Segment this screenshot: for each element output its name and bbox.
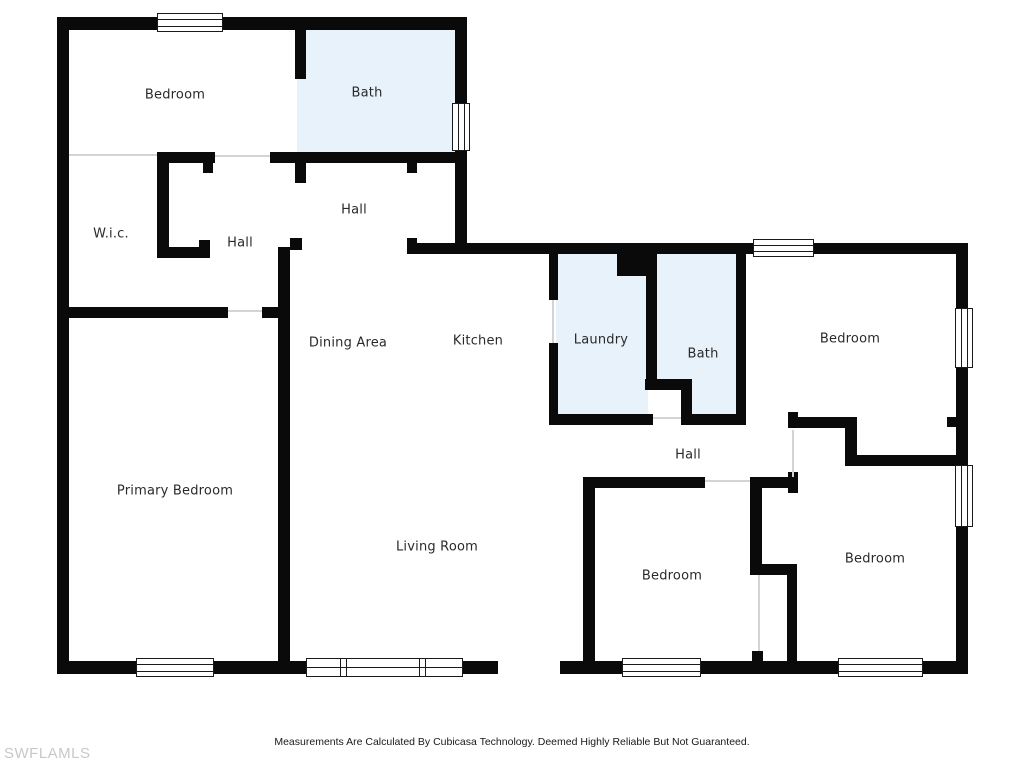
room-label-hall-left: Hall (227, 236, 253, 251)
window-frame-line (158, 26, 222, 27)
room-label-bedroom-top-left: Bedroom (145, 88, 205, 103)
window (753, 239, 814, 257)
wall-segment (845, 455, 957, 466)
room-label-living-room: Living Room (396, 540, 478, 555)
wall-segment (736, 243, 746, 425)
window-frame-line (839, 671, 922, 672)
wall-segment (157, 247, 210, 258)
wall-segment (752, 651, 763, 663)
wall-segment (199, 240, 210, 248)
window (955, 465, 973, 527)
room-label-laundry: Laundry (574, 333, 628, 348)
bath-right-door-recess (653, 390, 681, 417)
opening-line (69, 154, 157, 156)
window (452, 103, 470, 151)
wall-segment (407, 243, 968, 254)
duct-block (617, 243, 651, 276)
room-label-bedroom-bottom-middle: Bedroom (642, 569, 702, 584)
wall-segment (549, 343, 558, 423)
window-frame-line (839, 664, 922, 665)
room-label-kitchen: Kitchen (453, 334, 503, 349)
wall-segment (295, 152, 306, 183)
window-frame-line (137, 664, 213, 665)
window-frame-line (961, 309, 962, 367)
window-frame-line (961, 466, 962, 526)
window-frame-line (307, 667, 462, 668)
wall-segment (787, 564, 797, 673)
opening-line (653, 417, 681, 419)
window (838, 658, 923, 677)
wall-segment (57, 307, 228, 318)
room-label-bedroom-bottom-right: Bedroom (845, 552, 905, 567)
window-frame-line (967, 466, 968, 526)
wall-segment (57, 17, 69, 673)
window (136, 658, 214, 677)
opening-line (758, 575, 760, 651)
opening-line (215, 155, 270, 157)
wall-segment (57, 17, 467, 30)
opening-line (228, 310, 262, 312)
room-label-bedroom-right-top: Bedroom (820, 332, 880, 347)
window (157, 13, 223, 32)
window-frame-line (754, 251, 813, 252)
room-label-bath-top: Bath (351, 86, 382, 101)
window-frame-line (464, 104, 465, 150)
opening-line (552, 300, 554, 343)
window-frame-line (137, 671, 213, 672)
window-frame-line (419, 659, 420, 676)
floor-plan: Bedroom Bath W.i.c. Hall Hall Dining Are… (0, 0, 1024, 768)
sliding-door (306, 658, 463, 677)
wall-segment (788, 417, 847, 428)
wall-segment (549, 243, 558, 300)
window-frame-line (346, 659, 347, 676)
window-frame-line (754, 245, 813, 246)
window-frame-line (623, 664, 700, 665)
window (955, 308, 973, 368)
wall-segment (290, 238, 302, 250)
window-frame-line (425, 659, 426, 676)
window-frame-line (967, 309, 968, 367)
wall-segment (407, 238, 417, 254)
wall-segment (549, 414, 653, 425)
room-label-primary-bedroom: Primary Bedroom (117, 484, 233, 499)
room-label-wic: W.i.c. (93, 227, 129, 242)
wall-segment (203, 152, 213, 173)
wall-segment (157, 152, 169, 258)
watermark: SWFLAMLS (4, 745, 91, 762)
wall-segment (750, 477, 762, 575)
window-frame-line (158, 19, 222, 20)
wall-segment (947, 417, 956, 427)
room-label-hall-center: Hall (341, 203, 367, 218)
opening-line (705, 480, 750, 482)
wall-segment (583, 477, 705, 488)
wall-segment (295, 28, 306, 79)
room-label-hall-right: Hall (675, 448, 701, 463)
room-label-bath-right: Bath (687, 347, 718, 362)
disclaimer-text: Measurements Are Calculated By Cubicasa … (0, 736, 1024, 748)
window-frame-line (623, 671, 700, 672)
wall-segment (278, 247, 290, 673)
opening-line (792, 430, 794, 477)
window (622, 658, 701, 677)
room-label-dining-area: Dining Area (309, 336, 387, 351)
window-frame-line (458, 104, 459, 150)
window-frame-line (340, 659, 341, 676)
wall-segment (583, 477, 595, 673)
wall-segment (681, 379, 692, 425)
wall-segment (407, 152, 417, 173)
